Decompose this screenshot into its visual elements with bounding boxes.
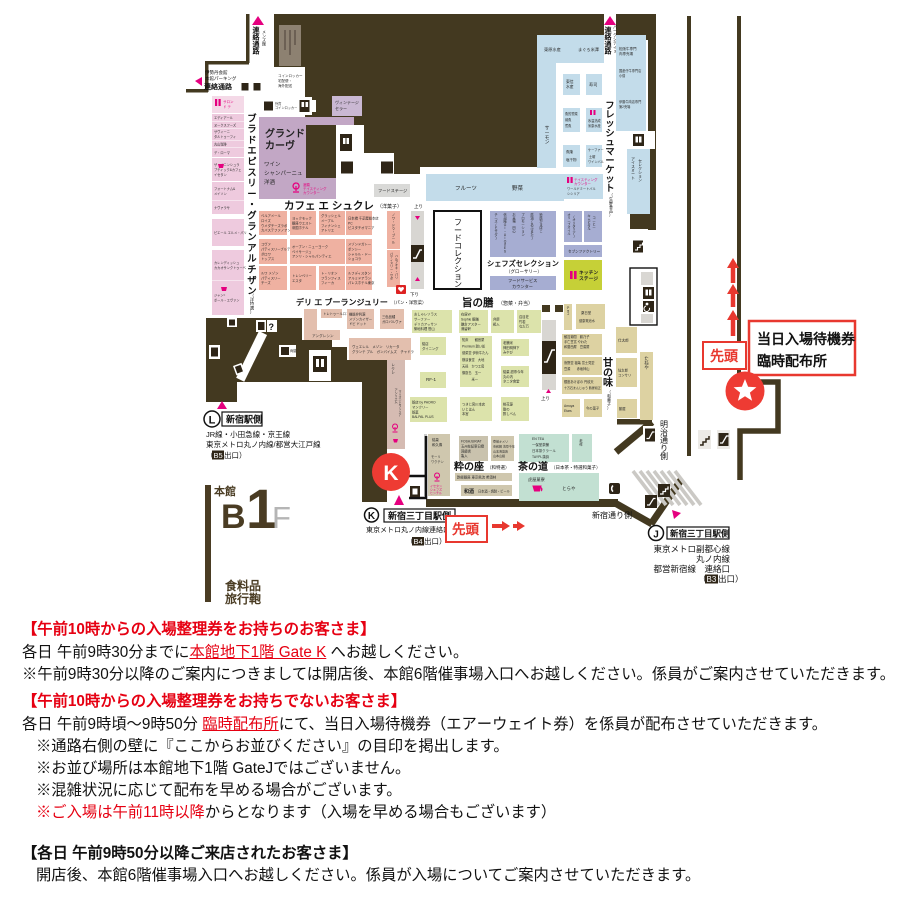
svg-text:ヴェエレル メゾン リカータ: ヴェエレル メゾン リカータ <box>352 344 399 349</box>
svg-text:シャルル・ドー: シャルル・ドー <box>348 252 371 256</box>
svg-text:出口）: 出口） <box>224 450 247 460</box>
svg-text:パティスリーブルテル: パティスリーブルテル <box>261 247 294 252</box>
svg-text:丸ノ内線: 丸ノ内線 <box>696 554 731 564</box>
svg-text:松阪牛専門: 松阪牛専門 <box>619 46 637 51</box>
svg-text:たねや: たねや <box>644 356 649 371</box>
svg-text:オーブン・ニューヨーク: オーブン・ニューヨーク <box>292 244 328 249</box>
svg-text:東京メトロ副都心線: 東京メトロ副都心線 <box>653 544 730 554</box>
svg-text:一保堂茶舗: 一保堂茶舗 <box>532 442 550 447</box>
svg-text:デリカアッサン: デリカアッサン <box>414 321 438 326</box>
svg-text:ベルアメール: ベルアメール <box>261 213 281 218</box>
svg-text:本館パーキング: 本館パーキング <box>205 75 237 82</box>
svg-text:デ・ローマ: デ・ローマ <box>214 150 230 155</box>
svg-text:出口）: 出口） <box>718 574 744 584</box>
svg-text:日本橋 千疋屋総本店: 日本橋 千疋屋総本店 <box>348 216 379 221</box>
svg-text:酢飯銀座 東京風流 希須林: 酢飯銀座 東京風流 希須林 <box>457 475 497 480</box>
svg-text:J: J <box>653 530 659 541</box>
svg-text:いとはん: いとはん <box>462 406 476 411</box>
svg-text:モーリ: モーリ <box>431 455 441 459</box>
svg-text:豆源 赤坂柿山: 豆源 赤坂柿山 <box>564 366 590 371</box>
svg-text:なだ万: なだ万 <box>519 324 530 329</box>
svg-text:TAYPL漢詩: TAYPL漢詩 <box>532 454 550 459</box>
svg-text:B: B <box>221 498 246 536</box>
svg-text:東原水産: 東原水産 <box>544 46 561 53</box>
svg-text:東京メトロ丸ノ内線/都営大江戸線: 東京メトロ丸ノ内線/都営大江戸線 <box>206 439 321 449</box>
svg-text:フレッシュマーケット: フレッシュマーケット <box>605 100 614 193</box>
svg-text:?: ? <box>269 322 275 332</box>
svg-text:パティスリー・サダ: パティスリー・サダ <box>390 251 393 281</box>
svg-text:銘菓 甜専今年: 銘菓 甜専今年 <box>503 369 524 374</box>
svg-text:シシリア: シシリア <box>567 191 580 196</box>
svg-text:（生鮮食品）: （生鮮食品） <box>609 193 613 218</box>
svg-text:ピエール エルメ・パリ: ピエール エルメ・パリ <box>214 230 247 235</box>
svg-text:粋の座: 粋の座 <box>454 460 484 473</box>
svg-text:マリオジェラッリア: マリオジェラッリア <box>399 389 402 417</box>
svg-text:PC: PC <box>348 221 353 225</box>
svg-text:茶の道: 茶の道 <box>517 460 548 473</box>
svg-text:小僧: 小僧 <box>619 73 625 78</box>
svg-text:ヴィンテージ: ヴィンテージ <box>335 99 359 105</box>
svg-text:EN TEA: EN TEA <box>532 437 545 441</box>
svg-text:健菜堂 伊勢牛たん: 健菜堂 伊勢牛たん <box>462 350 489 355</box>
svg-text:キッチン: キッチン <box>579 270 598 276</box>
svg-text:とらや: とらや <box>562 485 576 492</box>
svg-text:ド テ: ド テ <box>223 104 231 109</box>
svg-text:パティスリー: パティスリー <box>261 275 281 280</box>
svg-text:ステージ: ステージ <box>579 276 598 282</box>
svg-text:カウンター: カウンター <box>574 181 592 186</box>
svg-text:F: F <box>272 500 291 535</box>
svg-text:ヌークスフーズ: ヌークスフーズ <box>214 122 237 127</box>
svg-text:グランド: グランド <box>265 127 305 140</box>
svg-text:銀座ウエスト: 銀座ウエスト <box>292 220 312 225</box>
svg-text:サーファー: サーファー <box>414 317 430 322</box>
svg-text:RF-1: RF-1 <box>426 377 436 382</box>
svg-text:当日入場待機券: 当日入場待機券 <box>757 331 856 347</box>
svg-text:上り: 上り <box>414 203 423 210</box>
svg-text:メゾンカイザー: メゾンカイザー <box>349 316 372 321</box>
svg-text:臨時配布所: 臨時配布所 <box>757 353 827 369</box>
svg-text:桃花源: 桃花源 <box>503 402 514 407</box>
svg-text:（惣菜・弁当）: （惣菜・弁当） <box>498 300 533 307</box>
svg-text:フィーカ: フィーカ <box>321 280 334 285</box>
svg-text:神田明神下: 神田明神下 <box>503 345 520 350</box>
svg-text:フォートナム&: フォートナム& <box>214 186 236 191</box>
svg-text:帝国ホテル: 帝国ホテル <box>292 225 309 230</box>
svg-text:セレクション: セレクション <box>638 158 642 182</box>
svg-text:(オリタリア): (オリタリア) <box>572 215 575 238</box>
svg-text:ロイズ: ロイズ <box>261 218 271 223</box>
svg-text:伊勢丹会館: 伊勢丹会館 <box>205 69 228 76</box>
svg-text:横濱食堂 大地: 横濱食堂 大地 <box>462 357 485 362</box>
svg-text:第2売場: 第2売場 <box>619 104 631 109</box>
svg-text:ヨックモック: ヨックモック <box>292 216 312 221</box>
svg-text:塩干物: 塩干物 <box>566 157 577 162</box>
svg-text:カウンター: カウンター <box>303 190 321 195</box>
svg-text:（パン・洋惣菜）: （パン・洋惣菜） <box>391 299 426 306</box>
svg-text:和蘭西屋 豆腐屋: 和蘭西屋 豆腐屋 <box>564 344 590 349</box>
svg-text:L: L <box>209 415 216 427</box>
svg-text:国産仔牛専門店: 国産仔牛専門店 <box>619 68 641 73</box>
svg-text:在原W: 在原W <box>461 312 472 317</box>
svg-text:専和解 浅草今年: 専和解 浅草今年 <box>493 444 515 449</box>
svg-text:丸の内: 丸の内 <box>503 374 513 379</box>
svg-text:（和菓子）: （和菓子） <box>607 390 611 411</box>
svg-text:カーヴ: カーヴ <box>265 139 295 152</box>
svg-text:手亡豆富 やわた: 手亡豆富 やわた <box>564 339 587 344</box>
svg-text:シャンパーニュ: シャンパーニュ <box>264 170 303 177</box>
svg-text:ケーファー: ケーファー <box>588 147 604 152</box>
svg-text:ダイニング: ダイニング <box>422 346 439 351</box>
svg-text:知床 観音屋: 知床 観音屋 <box>462 337 485 342</box>
svg-text:ガロバルヴァ: ガロバルヴァ <box>382 319 402 324</box>
svg-text:ブラドエピスリー・グランアルチザン: ブラドエピスリー・グランアルチザン <box>247 112 257 296</box>
svg-text:アンリ・シャルパンティエ: アンリ・シャルパンティエ <box>292 254 332 259</box>
svg-text:銘菓: 銘菓 <box>432 437 439 442</box>
svg-text:フードコレクション: フードコレクション <box>454 218 462 289</box>
svg-text:K: K <box>368 511 376 522</box>
svg-text:フィナンシェ: フィナンシェ <box>321 223 341 228</box>
svg-text:銘店: 銘店 <box>422 341 429 346</box>
svg-text:コーヒー: コーヒー <box>592 216 595 230</box>
svg-text:フルーツ: フルーツ <box>455 185 477 192</box>
svg-text:米一: 米一 <box>462 377 479 382</box>
svg-text:築地料理 笹山: 築地料理 笹山 <box>414 326 435 331</box>
svg-text:満留軒: 満留軒 <box>461 326 472 331</box>
svg-text:本宮: 本宮 <box>462 411 469 416</box>
svg-text:デリ エ ブーランジュリー: デリ エ ブーランジュリー <box>296 297 388 307</box>
svg-text:伊藤牛肉店専門: 伊藤牛肉店専門 <box>619 99 641 104</box>
svg-text:酢しべん: 酢しべん <box>503 411 517 416</box>
svg-text:魚隆: 魚隆 <box>566 149 574 154</box>
svg-text:カウンター: カウンター <box>512 283 533 290</box>
svg-text:ルフディスタン: ルフディスタン <box>348 271 372 276</box>
svg-text:十万石まんじゅう 鶴屋和正: 十万石まんじゅう 鶴屋和正 <box>564 385 601 390</box>
svg-text:JR線・小田急線・京王線: JR線・小田急線・京王線 <box>206 429 291 439</box>
svg-text:焼魚: 焼魚 <box>565 117 572 122</box>
svg-text:連絡通路: 連絡通路 <box>253 25 261 55</box>
svg-text:日本酒・焼酎・ビール: 日本酒・焼酎・ビール <box>478 489 511 494</box>
svg-text:土曜: 土曜 <box>589 154 596 159</box>
svg-text:トップス: トップス <box>261 256 274 261</box>
svg-text:洋酒: 洋酒 <box>264 178 276 186</box>
svg-text:タニタ食堂: タニタ食堂 <box>503 379 520 384</box>
svg-text:みやび: みやび <box>503 350 514 355</box>
svg-text:鶴屋: 鶴屋 <box>619 406 626 411</box>
svg-text:鎌倉アスター: 鎌倉アスター <box>461 321 481 326</box>
svg-text:ポール・エヴァン: ポール・エヴァン <box>214 298 240 303</box>
svg-text:サーモン: サーモン <box>545 125 550 145</box>
svg-text:まぐろ米澤: まぐろ米澤 <box>578 46 599 53</box>
svg-text:新宿三丁目駅側: 新宿三丁目駅側 <box>388 510 451 521</box>
svg-text:米康水産: 米康水産 <box>588 123 601 128</box>
svg-text:弁慶: 弁慶 <box>493 317 500 322</box>
svg-text:東信: 東信 <box>566 79 574 84</box>
svg-text:ヒンチル: ヒンチル <box>430 490 442 495</box>
svg-text:和酒: 和酒 <box>463 488 474 495</box>
svg-text:イセタン: イセタン <box>214 172 227 177</box>
svg-text:トレンベリー: トレンベリー <box>292 274 312 278</box>
svg-text:魚的惣菜: 魚的惣菜 <box>565 111 579 116</box>
svg-text:東京メトロ丸ノ内線連絡口: 東京メトロ丸ノ内線連絡口 <box>366 525 450 534</box>
svg-text:氷温熟成: 氷温熟成 <box>588 118 602 123</box>
svg-text:煮魚: 煮魚 <box>565 123 572 128</box>
svg-text:（洋菓子）: （洋菓子） <box>377 203 402 210</box>
svg-text:アルミドアラン: アルミドアラン <box>348 275 372 280</box>
svg-text:ナヴァラサ: ナヴァラサ <box>214 205 230 210</box>
svg-text:旅行鞄: 旅行鞄 <box>225 591 261 606</box>
svg-text:虎屋菓寮: 虎屋菓寮 <box>528 476 546 483</box>
svg-text:パレスホテル東京: パレスホテル東京 <box>348 280 375 285</box>
svg-text:セラー: セラー <box>335 105 347 111</box>
svg-text:アトリエ: アトリエ <box>321 228 335 233</box>
svg-text:日本茶クラール: 日本茶クラール <box>532 448 556 453</box>
svg-text:Etars: Etars <box>564 409 572 413</box>
svg-text:コインロッカー: コインロッカー <box>278 73 303 78</box>
svg-text:ショコラ: ショコラ <box>348 256 361 261</box>
svg-text:銀座あけぼの 円紋天: 銀座あけぼの 円紋天 <box>564 379 594 384</box>
svg-text:鶏入: 鶏入 <box>493 321 500 326</box>
svg-text:アングレシン: アングレシン <box>312 333 334 338</box>
svg-text:ハルアオキ・パリ: ハルアオキ・パリ <box>395 254 398 280</box>
svg-text:回顧書: 回顧書 <box>461 448 472 453</box>
svg-text:壱岐キメリ: 壱岐キメリ <box>493 439 508 444</box>
svg-text:ワクテン: ワクテン <box>431 459 444 464</box>
svg-text:和久傳: 和久傳 <box>432 442 443 447</box>
svg-text:旨の膳: 旨の膳 <box>462 296 494 309</box>
svg-text:チーズ: チーズ <box>261 280 271 285</box>
svg-text:ダロワ: ダロワ <box>261 251 271 256</box>
svg-text:先頭: 先頭 <box>452 521 479 537</box>
svg-text:野菜: 野菜 <box>512 184 524 192</box>
svg-text:コインロッカー: コインロッカー <box>275 105 297 110</box>
svg-text:ワールドミートバル: ワールドミートバル <box>567 186 596 191</box>
svg-text:ト・リオン: ト・リオン <box>321 271 338 276</box>
svg-text:五州在記案日織: 五州在記案日織 <box>461 444 485 449</box>
svg-text:連絡通路: 連絡通路 <box>204 82 233 91</box>
svg-text:エディアール: エディアール <box>214 115 234 120</box>
svg-text:山本山織: 山本山織 <box>493 453 505 458</box>
svg-text:連絡通路: 連絡通路 <box>605 25 613 55</box>
svg-text:FOSHJURIAT: FOSHJURIAT <box>461 440 481 444</box>
svg-text:サヴィーニ: サヴィーニ <box>214 129 230 134</box>
svg-text:亀入: 亀入 <box>461 453 468 458</box>
svg-text:熊野堂 福亀 富士見堂: 熊野堂 福亀 富士見堂 <box>564 360 594 365</box>
svg-text:フードサービス: フードサービス <box>508 277 537 284</box>
svg-text:コヴァ: コヴァ <box>261 242 271 247</box>
svg-text:観賞菊間 鶴乃子: 観賞菊間 鶴乃子 <box>564 334 590 339</box>
svg-text:今の菓子: 今の菓子 <box>586 405 600 410</box>
svg-text:ルワ メゾン: ルワ メゾン <box>261 271 279 276</box>
svg-text:カバステファノアンナ: カバステファノアンナ <box>261 228 295 233</box>
svg-text:ピスタチオマニア: ピスタチオマニア <box>348 225 375 230</box>
svg-text:B4: B4 <box>414 537 423 546</box>
svg-text:丸山珈琲: 丸山珈琲 <box>214 141 228 146</box>
svg-text:肉専売場: 肉専売場 <box>619 51 633 56</box>
svg-text:新宿通り側: 新宿通り側 <box>592 510 632 520</box>
svg-text:機能弁利源: 機能弁利源 <box>349 312 366 317</box>
svg-text:シェフズセレクション: シェフズセレクション <box>487 259 559 268</box>
svg-text:BALPAL PLUS: BALPAL PLUS <box>412 415 434 419</box>
svg-text:ザ・ペニンシュラ: ザ・ペニンシュラ <box>214 162 240 167</box>
svg-text:グランテ ブル ガンパイムズ チャドラ: グランテ ブル ガンパイムズ チャドラ <box>352 349 414 354</box>
svg-text:Premium 甜い処: Premium 甜い処 <box>462 344 486 349</box>
svg-text:マンクリー: マンクリー <box>412 405 428 410</box>
svg-text:カフェ エ シュクレ: カフェ エ シュクレ <box>284 200 374 212</box>
svg-text:竹若: 竹若 <box>519 319 526 324</box>
svg-text:先頭: 先頭 <box>710 348 739 364</box>
svg-text:出口）: 出口） <box>424 536 447 546</box>
svg-text:つきじ宮川本店: つきじ宮川本店 <box>462 402 486 407</box>
svg-text:メンズ館: メンズ館 <box>262 30 266 47</box>
svg-text:メープル: メープル <box>321 218 335 223</box>
svg-text:甘の味: 甘の味 <box>603 356 613 389</box>
svg-text:寿司: 寿司 <box>589 81 597 87</box>
svg-text:サロン: サロン <box>223 99 234 104</box>
svg-text:健康電池水: 健康電池水 <box>579 318 596 323</box>
svg-text:グラッシェル: グラッシェル <box>321 213 341 218</box>
svg-text:ジャン=: ジャン= <box>214 294 225 298</box>
svg-text:メイソン: メイソン <box>214 192 227 196</box>
svg-text:カカオサンクトゥーベ: カカオサンクトゥーベ <box>214 265 246 270</box>
svg-text:新宿駅側: 新宿駅側 <box>226 414 262 425</box>
svg-text:ベイサージュ: ベイサージュ <box>292 249 311 254</box>
svg-text:アンリエム: アンリエム <box>394 387 397 404</box>
svg-text:フランフィス: フランフィス <box>321 275 341 280</box>
svg-text:上り: 上り <box>541 395 550 402</box>
svg-text:おしゃレソラス: おしゃレソラス <box>414 312 437 317</box>
svg-text:仕太郎: 仕太郎 <box>618 337 629 342</box>
svg-text:本館: 本館 <box>214 484 236 498</box>
svg-text:B3: B3 <box>707 575 717 584</box>
svg-text:天孫 かつ工房: 天孫 かつ工房 <box>462 363 484 368</box>
svg-text:宅配便・: 宅配便・ <box>278 78 292 83</box>
svg-text:甜の: 甜の <box>503 406 510 411</box>
svg-text:新宿三丁目駅側: 新宿三丁目駅側 <box>670 529 730 539</box>
svg-text:両替: 両替 <box>290 348 297 353</box>
svg-text:アイスミート: アイスミート <box>631 156 635 180</box>
svg-text:Amoya: Amoya <box>564 404 574 408</box>
svg-text:銘店 by PAORO: 銘店 by PAORO <box>412 400 436 405</box>
svg-text:ドビ ドット: ドビ ドット <box>349 321 366 326</box>
svg-text:Sophie 銀膳: Sophie 銀膳 <box>461 317 479 322</box>
svg-text:レクレ: レクレ <box>391 363 395 374</box>
svg-text:銘菓: 銘菓 <box>412 409 419 414</box>
svg-text:ワイン: ワイン <box>264 161 281 168</box>
svg-text:明治通り側: 明治通り側 <box>660 420 668 461</box>
svg-text:トレトゥールロン: トレトゥールロン <box>323 312 350 316</box>
svg-text:K: K <box>383 462 398 485</box>
svg-text:下り: 下り <box>410 292 419 298</box>
svg-text:カレンディッシュ: カレンディッシュ <box>214 260 239 265</box>
svg-text:海外配送: 海外配送 <box>278 83 292 88</box>
svg-text:コンサリ: コンサリ <box>618 372 631 377</box>
svg-text:メゾンドガトー: メゾンドガトー <box>348 242 371 247</box>
svg-text:タルトゥーフィ: タルトゥーフィ <box>214 134 236 139</box>
svg-text:チョコ: チョコ <box>566 305 569 316</box>
svg-text:山本海苔店: 山本海苔店 <box>493 448 508 453</box>
svg-text:ボンシー: ボンシー <box>348 247 361 252</box>
svg-text:都営新宿線 連絡口: 都営新宿線 連絡口 <box>653 564 730 574</box>
svg-text:ワインバル: ワインバル <box>588 159 605 164</box>
svg-text:エスタ: エスタ <box>292 278 302 283</box>
svg-text:御廚島 玉一: 御廚島 玉一 <box>462 370 482 375</box>
svg-text:食料品: 食料品 <box>224 578 261 593</box>
svg-text:薬日堂: 薬日堂 <box>581 310 592 315</box>
svg-text:三色品種: 三色品種 <box>382 314 396 319</box>
svg-text:仙太郎: 仙太郎 <box>618 368 629 373</box>
svg-text:（グローサリー）: （グローサリー） <box>506 268 542 275</box>
svg-text:セブンファクトリー: セブンファクトリー <box>568 249 601 254</box>
svg-text:（和特選）: （和特選） <box>487 464 510 471</box>
svg-text:水産: 水産 <box>566 84 574 89</box>
svg-text:召目荘: 召目荘 <box>519 314 530 319</box>
svg-text:老舗米: 老舗米 <box>503 340 514 345</box>
svg-text:ウメダチーズラボ: ウメダチーズラボ <box>261 223 288 228</box>
svg-text:B5: B5 <box>214 451 223 460</box>
svg-text:（日本茶・特選和菓子）: （日本茶・特選和菓子） <box>551 464 601 471</box>
svg-text:ブティック&カフェ: ブティック&カフェ <box>214 167 241 172</box>
